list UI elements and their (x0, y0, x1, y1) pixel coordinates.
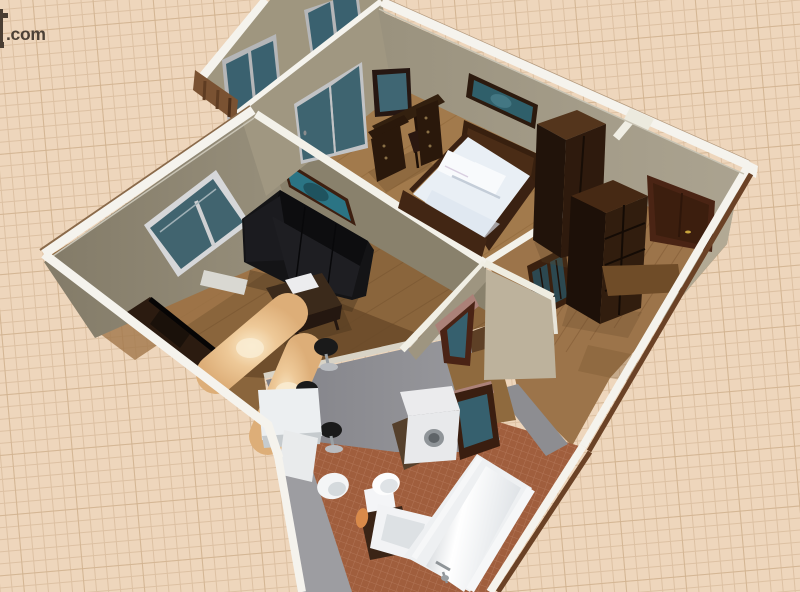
svg-text:.com: .com (6, 24, 46, 44)
